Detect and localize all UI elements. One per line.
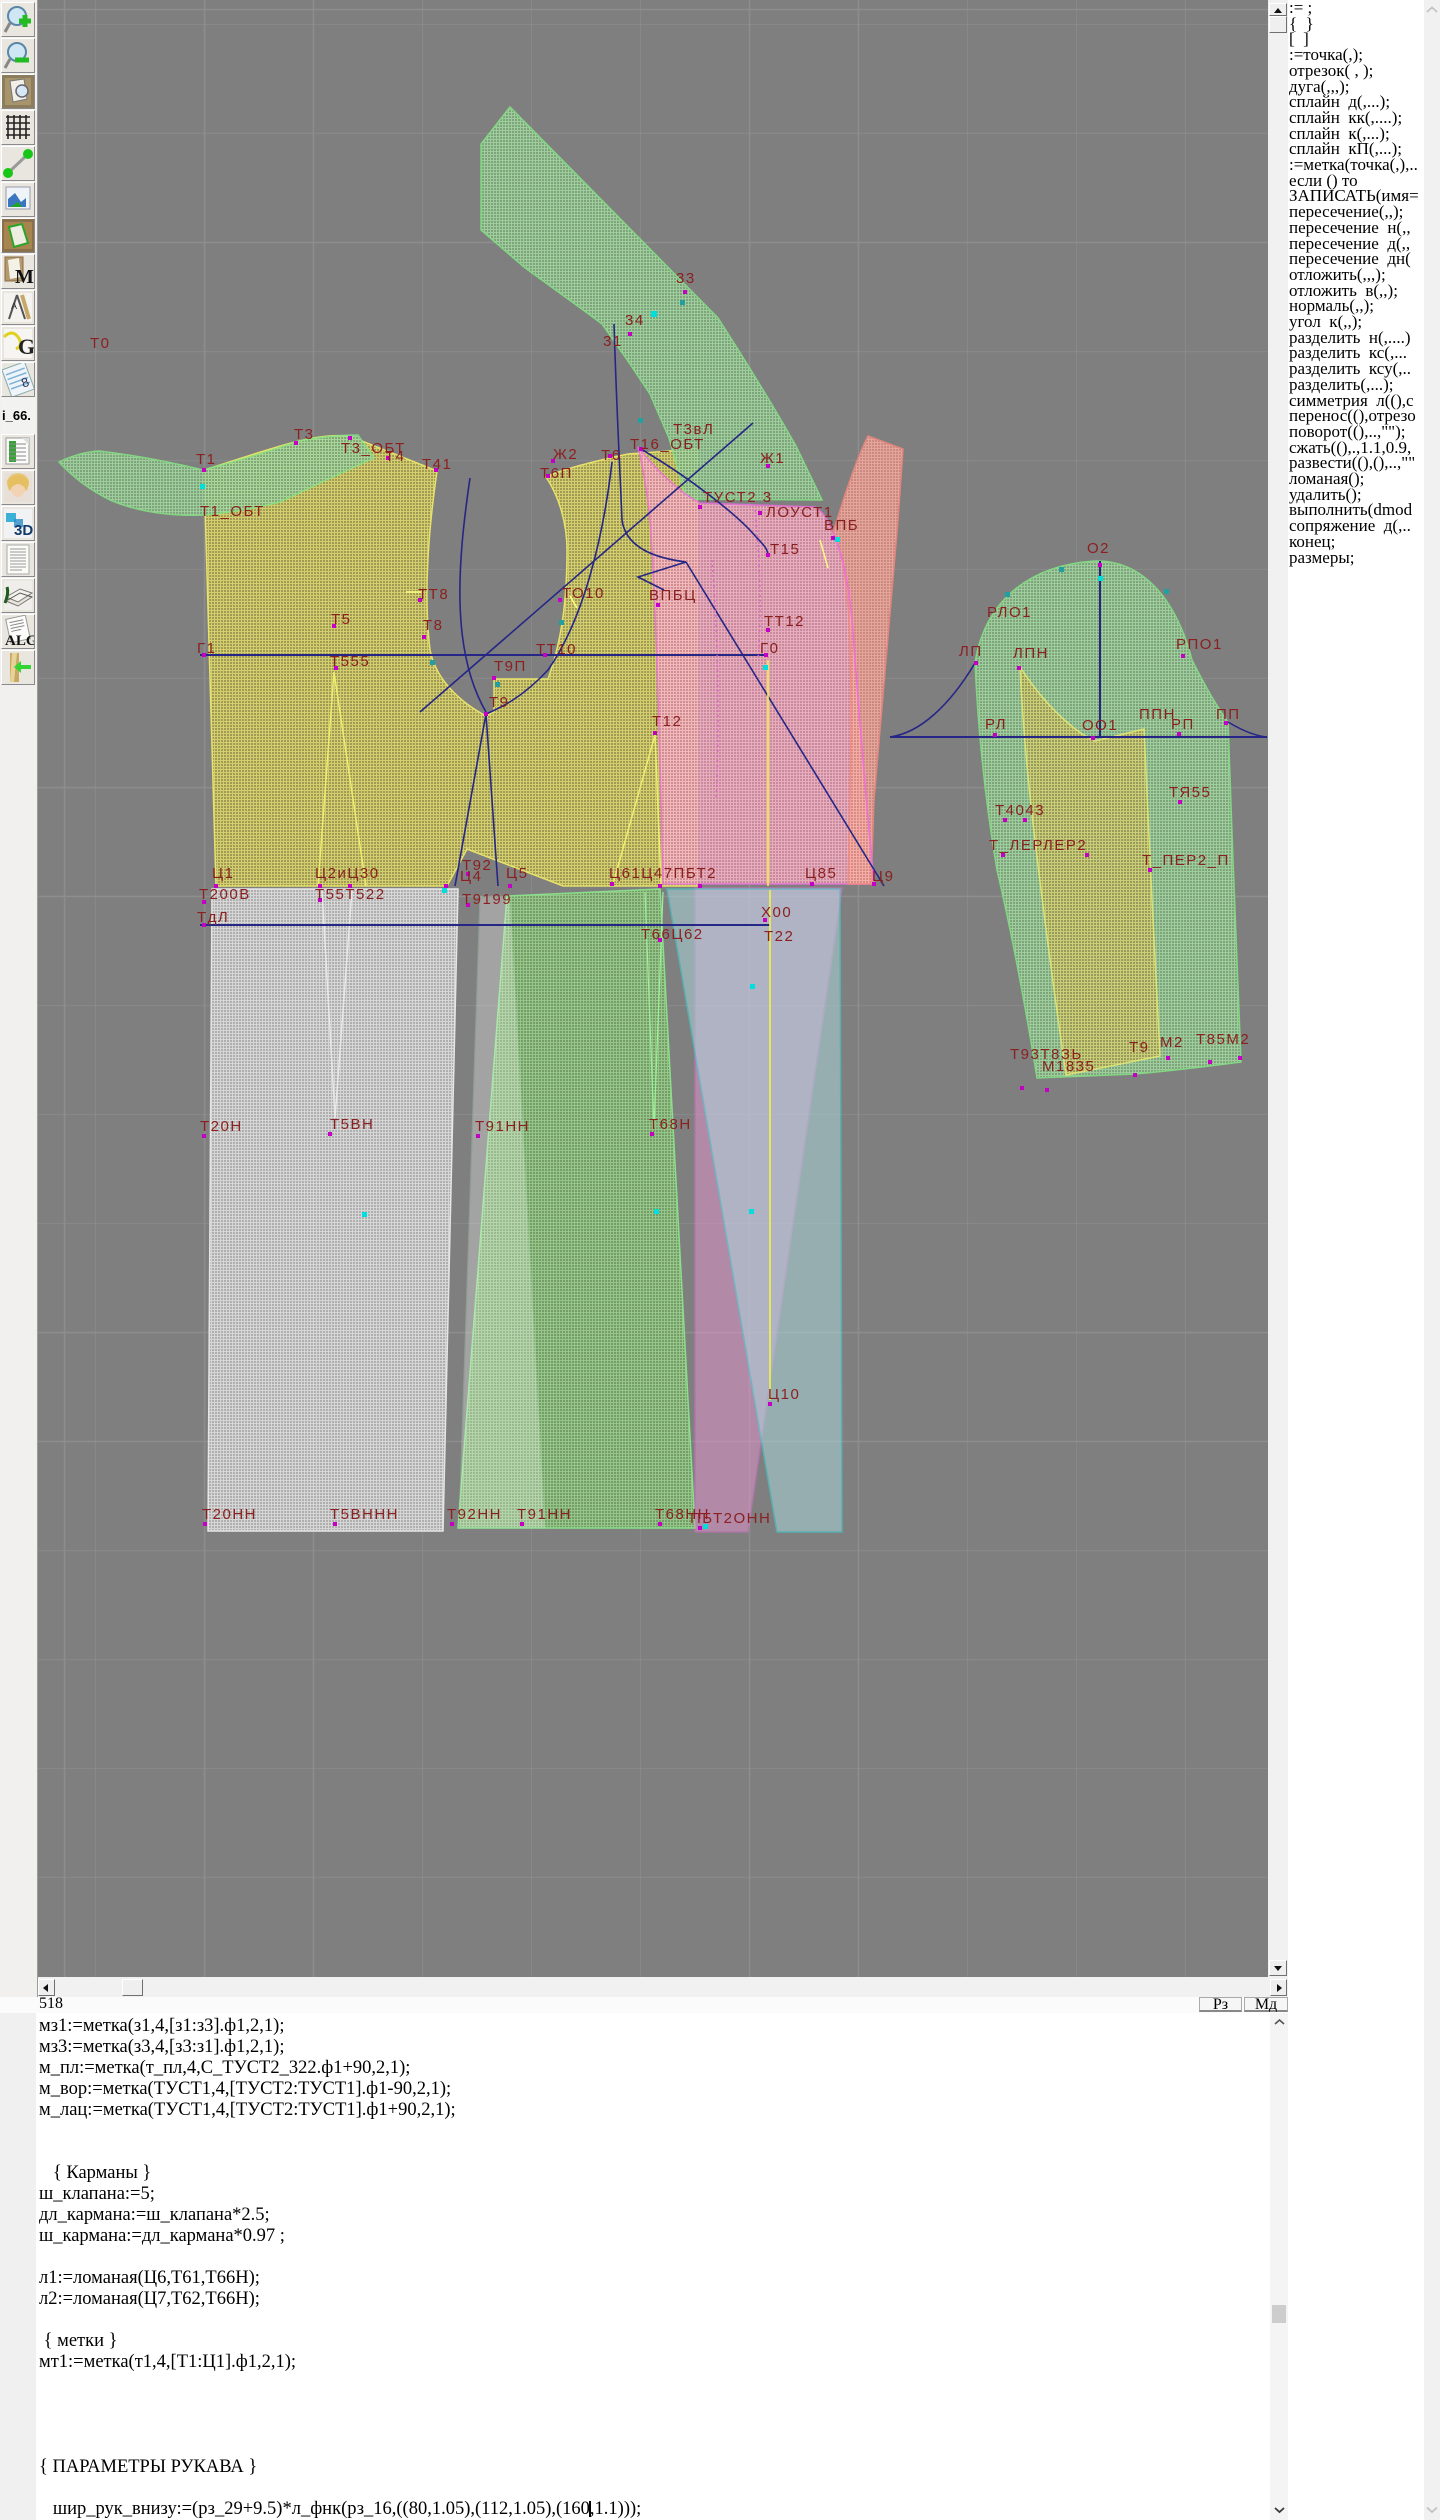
svg-text:Т92НН: Т92НН (447, 1506, 502, 1523)
svg-text:Т55Т522: Т55Т522 (315, 886, 386, 903)
svg-text:Т41: Т41 (422, 456, 452, 473)
svg-text:Т8: Т8 (423, 617, 444, 634)
svg-text:Т6П: Т6П (540, 465, 573, 482)
svg-text:ВПБ: ВПБ (824, 517, 859, 534)
svg-text:ЛП: ЛП (959, 643, 983, 660)
svg-text:34: 34 (625, 312, 645, 329)
svg-text:Т_ПЕР2_П: Т_ПЕР2_П (1142, 852, 1230, 869)
svg-text:Т16_ОБТ: Т16_ОБТ (630, 436, 705, 453)
svg-text:Т3: Т3 (294, 426, 315, 443)
svg-text:Т200В: Т200В (199, 886, 251, 903)
svg-text:РП: РП (1171, 716, 1195, 733)
svg-text:Т555: Т555 (330, 653, 370, 670)
svg-text:Ц61Ц47ПБТ2: Ц61Ц47ПБТ2 (609, 865, 717, 882)
svg-text:A: A (11, 301, 17, 311)
svg-text:ПБТ2ОНН: ПБТ2ОНН (690, 1510, 771, 1527)
svg-text:Ц1: Ц1 (212, 865, 234, 882)
svg-text:Т85М2: Т85М2 (1196, 1031, 1250, 1048)
svg-text:Т5: Т5 (331, 611, 352, 628)
svg-text:G: G (18, 334, 34, 359)
svg-text:33: 33 (676, 270, 696, 287)
svg-text:Т9: Т9 (489, 694, 510, 711)
svg-text:М1835: М1835 (1042, 1058, 1095, 1075)
svg-text:Т12: Т12 (652, 713, 682, 730)
svg-text:Г1: Г1 (197, 640, 216, 657)
svg-text:РЛ: РЛ (985, 716, 1007, 733)
svg-text:Ж2: Ж2 (553, 446, 578, 463)
svg-text:Т9199: Т9199 (462, 891, 512, 908)
svg-text:О2: О2 (1087, 540, 1110, 557)
svg-text:31: 31 (603, 333, 623, 350)
svg-text:ЛПН: ЛПН (1013, 645, 1049, 662)
svg-text:Т9: Т9 (1129, 1039, 1150, 1056)
svg-text:РПО1: РПО1 (1176, 636, 1223, 653)
svg-text:Т5ВННН: Т5ВННН (330, 1506, 399, 1523)
svg-text:Т9П: Т9П (494, 658, 527, 675)
svg-text:Т5ВН: Т5ВН (330, 1116, 374, 1133)
svg-text:ТУСТ2 3: ТУСТ2 3 (703, 489, 773, 506)
svg-text:Ц9: Ц9 (872, 868, 894, 885)
svg-text:ТЯ55: ТЯ55 (1169, 784, 1211, 801)
svg-text:Т68Н: Т68Н (649, 1116, 692, 1133)
svg-text:М2: М2 (1160, 1034, 1184, 1051)
svg-text:Т1_ОБТ: Т1_ОБТ (200, 503, 265, 520)
svg-text:Ц85: Ц85 (805, 865, 837, 882)
svg-text:ПП: ПП (1216, 706, 1241, 723)
svg-text:Т6: Т6 (601, 447, 622, 464)
svg-text:Г0: Г0 (760, 640, 779, 657)
svg-text:Т91НН: Т91НН (517, 1506, 572, 1523)
svg-text:ОО1: ОО1 (1082, 717, 1118, 734)
svg-text:ТТ8: ТТ8 (418, 586, 449, 603)
svg-text:Ж1: Ж1 (760, 450, 785, 467)
svg-text:M: M (15, 266, 34, 288)
svg-text:Ц5: Ц5 (506, 865, 528, 882)
svg-text:Ц10: Ц10 (768, 1386, 800, 1403)
svg-text:3D: 3D (14, 522, 33, 539)
svg-text:Т20НН: Т20НН (202, 1506, 257, 1523)
svg-text:Х00: Х00 (761, 904, 792, 921)
svg-text:Т_ЛЕРЛЕР2: Т_ЛЕРЛЕР2 (989, 837, 1087, 854)
svg-text:ТТ12: ТТ12 (764, 613, 805, 630)
svg-text:Т15: Т15 (770, 541, 800, 558)
svg-text:Т4043: Т4043 (995, 802, 1045, 819)
svg-text:Т1: Т1 (196, 451, 217, 468)
svg-text:Т22: Т22 (764, 928, 794, 945)
svg-text:Т4: Т4 (385, 448, 406, 465)
svg-text:Т0: Т0 (90, 335, 111, 352)
svg-text:ТдЛ: ТдЛ (197, 909, 229, 926)
svg-text:ТТ10: ТТ10 (536, 641, 577, 658)
svg-text:Т3вЛ: Т3вЛ (673, 421, 714, 438)
svg-text:Т20Н: Т20Н (200, 1118, 243, 1135)
svg-text:Т91НН: Т91НН (475, 1118, 530, 1135)
svg-text:Ц2иЦ30: Ц2иЦ30 (315, 865, 380, 882)
svg-text:ТО10: ТО10 (562, 585, 605, 602)
svg-text:ALG: ALG (5, 633, 34, 648)
svg-text:Ц4: Ц4 (460, 868, 482, 885)
svg-text:ВПБЦ: ВПБЦ (649, 587, 697, 604)
svg-text:Т66Ц62: Т66Ц62 (641, 926, 704, 943)
svg-text:РЛО1: РЛО1 (987, 604, 1032, 621)
